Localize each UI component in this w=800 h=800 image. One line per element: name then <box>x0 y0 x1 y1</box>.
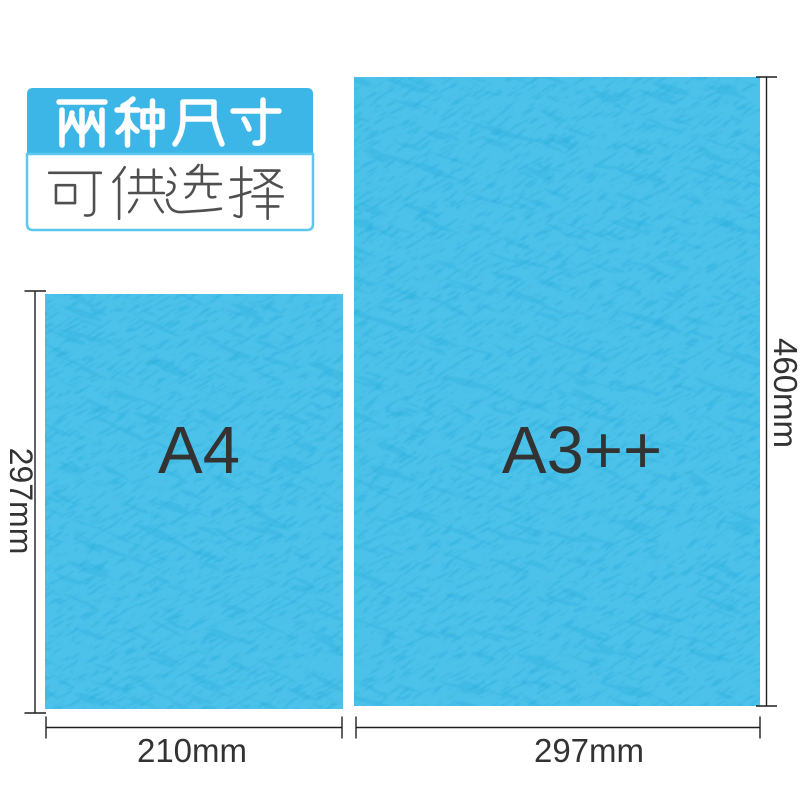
svg-text:297mm: 297mm <box>3 448 39 555</box>
svg-text:460mm: 460mm <box>767 338 800 448</box>
svg-text:210mm: 210mm <box>137 732 247 769</box>
svg-text:A4: A4 <box>158 413 240 488</box>
svg-text:A3++: A3++ <box>502 413 662 488</box>
svg-text:297mm: 297mm <box>534 732 644 769</box>
